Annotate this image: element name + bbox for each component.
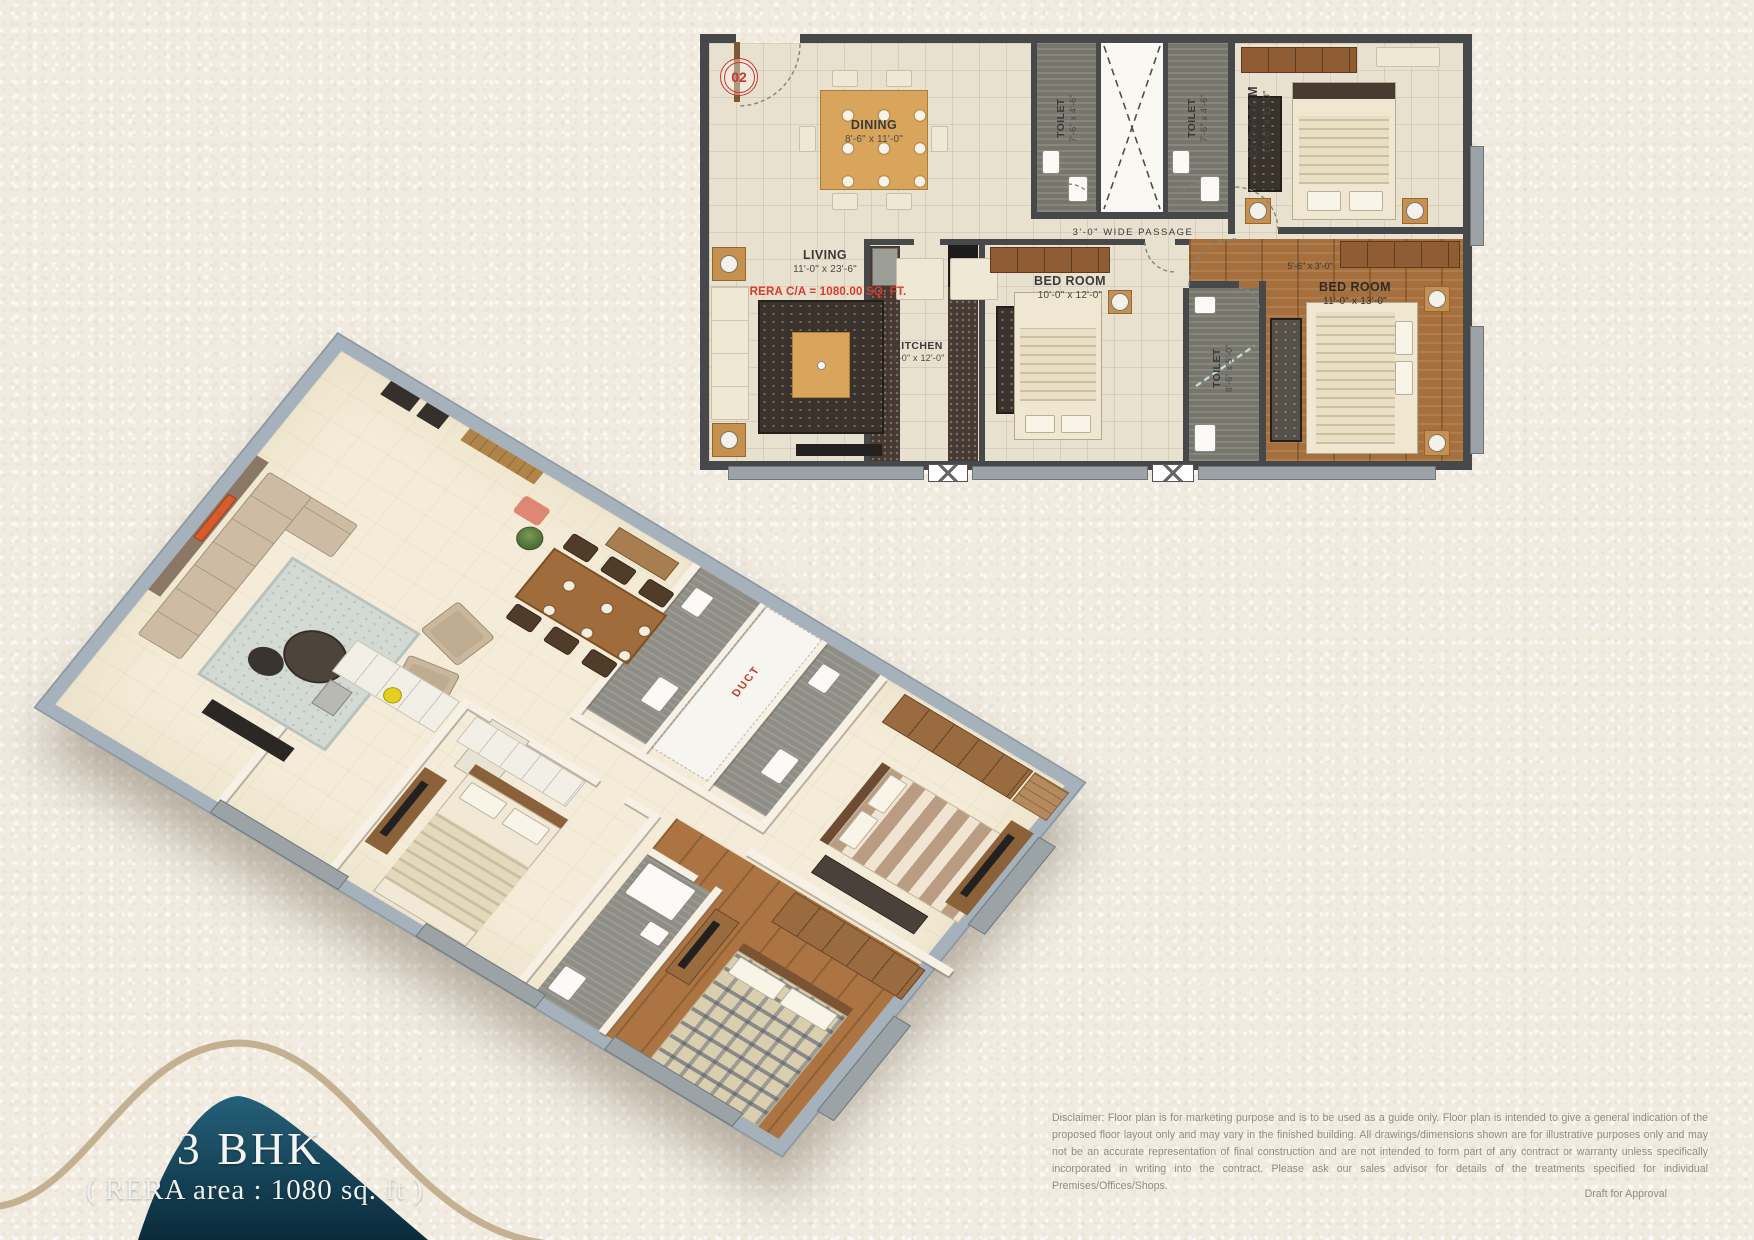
draft-approval-text: Draft for Approval xyxy=(1407,1188,1667,1200)
sofa xyxy=(711,286,749,420)
room-dim: 10'-0" x 12'-0" xyxy=(1000,290,1140,303)
wall xyxy=(700,34,709,470)
pillow xyxy=(1025,415,1055,433)
room-name: BED ROOM xyxy=(1246,86,1260,158)
bedroom3-label: BED ROOM 11'-0" x 13'-0" xyxy=(1280,280,1430,308)
blanket xyxy=(1316,312,1395,444)
dining-label: DINING 8'-6" x 11'-0" xyxy=(824,118,924,146)
wall-frame xyxy=(416,402,449,429)
wardrobe xyxy=(990,247,1110,273)
disclaimer-text: Disclaimer: Floor plan is for marketing … xyxy=(1052,1110,1708,1195)
bedroom1-label: BED ROOM 13'-0" x 11'-0" xyxy=(1246,67,1274,177)
room-name: DINING xyxy=(851,118,897,132)
room-name: BED ROOM xyxy=(1319,280,1391,294)
room-dim: 13'-0" x 11'-0" xyxy=(1262,67,1275,177)
wall xyxy=(800,34,1472,43)
room-name: LIVING xyxy=(803,248,847,262)
wall xyxy=(1163,43,1168,212)
room-dim: 8'-0" x 12'-0" xyxy=(886,353,950,364)
toilet3-label: TOILET 8'-6" x 5'-0" xyxy=(1211,313,1235,423)
entry-floor-logo xyxy=(512,495,551,527)
wc xyxy=(1200,176,1220,202)
room-name: TOILET xyxy=(1186,98,1198,138)
pillow xyxy=(1061,415,1091,433)
unit-type-title: 3 BHK xyxy=(80,1122,420,1175)
pillow xyxy=(1307,191,1341,211)
wall xyxy=(1228,43,1235,234)
ledge xyxy=(728,466,924,480)
wall xyxy=(1031,212,1235,219)
brochure-page: 02 DINING 8'-6" x 11'-0" LIVING 11'-0" x… xyxy=(0,0,1754,1240)
room-dim: 7'-6" x 4'-6" xyxy=(1199,63,1210,173)
entry-door-3d xyxy=(460,428,543,484)
lamp-side-table xyxy=(712,423,746,457)
dining-chair xyxy=(886,193,912,210)
wall xyxy=(1096,43,1101,212)
pillow xyxy=(1395,361,1413,395)
dining-chair xyxy=(832,70,858,87)
armchair-3d xyxy=(420,601,495,666)
kitchen-label: KITCHEN 8'-0" x 12'-0" xyxy=(886,340,950,364)
room-dim: 8'-6" x 5'-0" xyxy=(1224,313,1235,423)
room-name: TOILET xyxy=(1055,98,1067,138)
rera-area-subtitle: ( RERA area : 1080 sq. ft ) xyxy=(40,1174,470,1207)
ledge xyxy=(1470,146,1484,246)
floor-plan-2d: 02 DINING 8'-6" x 11'-0" LIVING 11'-0" x… xyxy=(700,34,1472,470)
plant xyxy=(511,522,549,555)
room-dim: 8'-6" x 11'-0" xyxy=(824,134,924,147)
ledge xyxy=(1470,326,1484,454)
dining-chair xyxy=(832,193,858,210)
dining-chair xyxy=(931,126,948,152)
wall xyxy=(1183,288,1189,461)
bed xyxy=(1292,82,1396,220)
wall xyxy=(1031,43,1037,219)
room-name: TOILET xyxy=(1211,348,1223,388)
lamp-side-table xyxy=(1424,430,1450,456)
unit-number-badge: 02 xyxy=(720,58,758,96)
foyer-dim-label: 5'-6" x 3'-0" xyxy=(1260,261,1360,271)
wc xyxy=(1194,424,1216,452)
bedroom-rug xyxy=(1270,318,1302,442)
wall xyxy=(864,239,914,245)
wall-frame xyxy=(380,381,420,412)
bed xyxy=(1014,292,1102,440)
rera-area-text: RERA C/A = 1080.00 SQ. FT. xyxy=(718,286,938,298)
ledge xyxy=(972,466,1148,480)
toilet1-label: TOILET 7'-6" x 4'-6" xyxy=(1055,63,1079,173)
dresser xyxy=(1376,47,1440,67)
headboard xyxy=(1293,83,1395,99)
flower-bed-duct xyxy=(928,464,968,482)
blanket xyxy=(1299,116,1389,184)
passage-label: 3'-0" WIDE PASSAGE xyxy=(1030,227,1236,238)
room-dim: 11'-0" x 23'-6" xyxy=(750,264,900,277)
lamp-side-table xyxy=(1245,198,1271,224)
blanket xyxy=(1020,328,1096,401)
pillow xyxy=(1349,191,1383,211)
ledge xyxy=(1198,466,1436,480)
dining-chair xyxy=(886,70,912,87)
room-name: BED ROOM xyxy=(1034,274,1106,288)
wc xyxy=(1068,176,1088,202)
wall xyxy=(1259,281,1266,461)
flower-bed-duct xyxy=(1152,464,1194,482)
table-decor xyxy=(817,361,826,370)
room-dim: 7'-6" x 4'-6" xyxy=(1068,63,1079,173)
tv-unit xyxy=(796,444,882,456)
washbasin xyxy=(1194,296,1216,314)
wall xyxy=(1189,281,1239,288)
toilet2-label: TOILET 7'-6" x 4'-6" xyxy=(1186,63,1210,173)
wall xyxy=(1278,227,1472,234)
lamp-side-table xyxy=(712,247,746,281)
pillow xyxy=(1395,321,1413,355)
ledge-3d xyxy=(210,799,349,890)
duct-shaft xyxy=(1101,43,1163,212)
wall xyxy=(1175,239,1189,245)
dining-chair xyxy=(799,126,816,152)
wall-3d xyxy=(623,796,654,817)
room-dim: 11'-0" x 13'-0" xyxy=(1280,296,1430,309)
lamp-side-table xyxy=(1402,198,1428,224)
room-name: KITCHEN xyxy=(893,340,942,352)
bedroom2-label: BED ROOM 10'-0" x 12'-0" xyxy=(1000,274,1140,302)
living-label: LIVING 11'-0" x 23'-6" xyxy=(750,248,900,276)
wall xyxy=(985,239,1145,245)
unit-number: 02 xyxy=(731,69,747,85)
bed xyxy=(1306,302,1418,454)
